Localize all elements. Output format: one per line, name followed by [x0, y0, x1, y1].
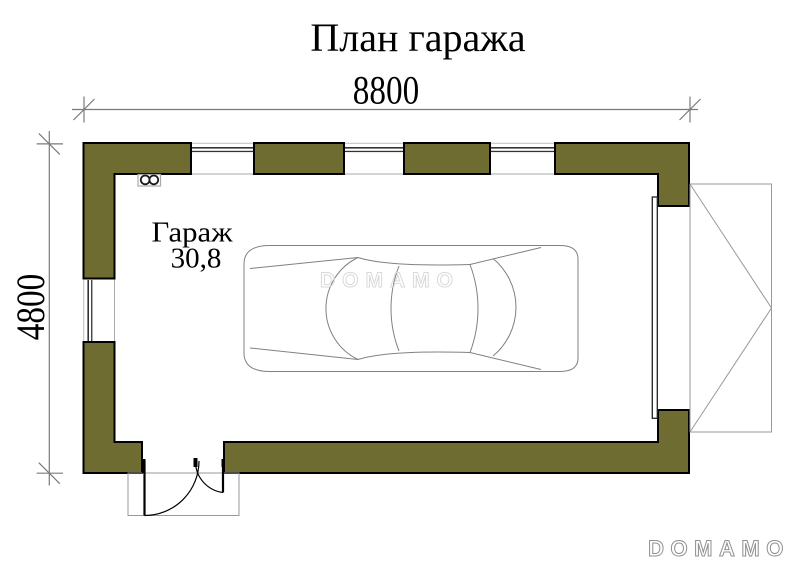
svg-text:DOMAMO: DOMAMO [648, 536, 790, 561]
svg-text:DOMAMO: DOMAMO [320, 269, 460, 292]
svg-text:План гаража: План гаража [310, 15, 526, 60]
svg-text:30,8: 30,8 [171, 243, 222, 275]
svg-text:8800: 8800 [353, 68, 419, 113]
svg-text:4800: 4800 [8, 274, 53, 340]
